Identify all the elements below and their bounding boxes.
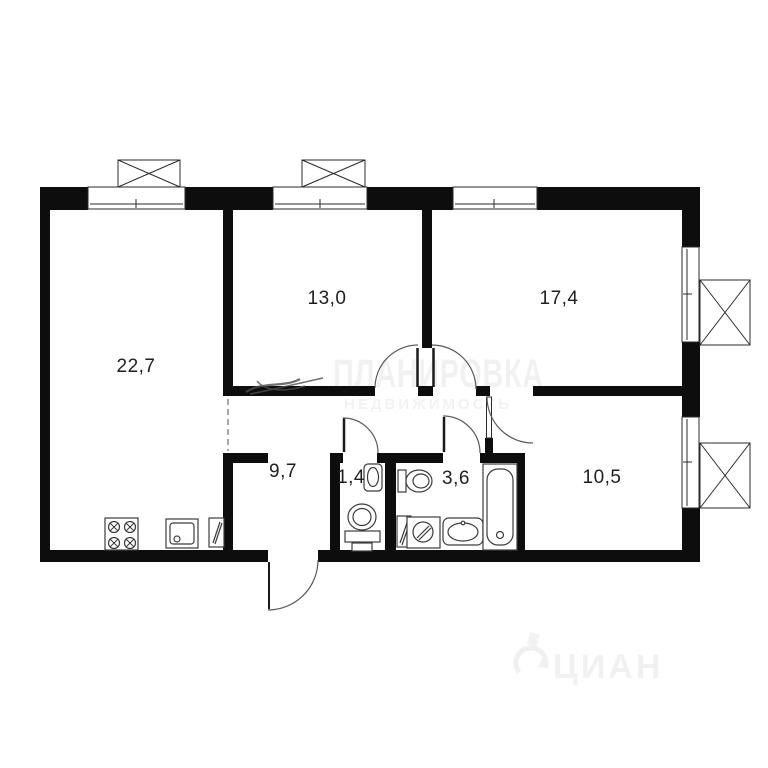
cian-logo-icon: [516, 632, 549, 672]
wall-bedroom3-stub: [485, 438, 493, 453]
wall-bathroom-right: [517, 453, 525, 553]
label-bedroom-2: 17,4: [540, 288, 579, 309]
wall-right-1: [682, 187, 700, 247]
wc-toilet-icon: [345, 504, 380, 551]
door-bedroom1: [375, 345, 418, 388]
wall-hallway-top-3: [476, 386, 490, 396]
window-bedroom2-right: [682, 247, 699, 342]
wall-wc-bathroom: [385, 453, 396, 553]
label-living-kitchen: 22,7: [117, 356, 156, 377]
label-bathroom: 3,6: [442, 468, 470, 489]
vent-box-bedroom2: [700, 280, 750, 345]
wall-wc-top-1: [330, 453, 343, 463]
bathtub-icon: [483, 464, 517, 550]
floor-plan-canvas: ПЛАНИРОВКА НЕДВИЖИМОСТЬ ЦИАН: [0, 0, 768, 768]
water-heater-icon: [209, 518, 224, 547]
wall-bedroom1-bedroom2: [422, 210, 432, 348]
vent-box-bedroom1: [302, 160, 365, 187]
bathroom-sink-icon: [443, 518, 483, 545]
label-wc: 1,4: [337, 467, 365, 488]
wall-wc-top-2: [377, 453, 396, 463]
window-bedroom1: [273, 187, 367, 209]
bathroom-toilet-icon: [398, 470, 432, 492]
wc-basin-icon: [364, 464, 382, 491]
kitchen-sink-icon: [166, 519, 198, 548]
door-bathroom: [443, 416, 480, 453]
wall-bottom-2: [318, 550, 700, 562]
stove-icon: [105, 518, 138, 550]
wall-top-4: [537, 187, 700, 210]
door-bedroom3: [487, 397, 534, 443]
wall-left: [40, 187, 50, 562]
label-bedroom-1: 13,0: [308, 288, 347, 309]
vent-box-bedroom3: [700, 443, 750, 508]
wall-top-3: [367, 187, 453, 210]
wall-living-bedroom1: [223, 210, 233, 396]
wall-bottom-1: [40, 550, 268, 562]
wall-hallway-top-2: [418, 386, 433, 396]
wall-bathroom-top-2: [480, 453, 525, 463]
label-bedroom-3: 10,5: [583, 467, 622, 488]
washing-machine-icon: [407, 517, 440, 548]
window-bedroom3-right: [682, 417, 699, 508]
door-wc: [343, 418, 378, 453]
floor-plan-drawing: 22,7 13,0 17,4 9,7 1,4 3,6 10,5: [0, 0, 768, 768]
wall-bedroom2-bedroom3: [533, 386, 682, 396]
wall-bathroom-top-1: [396, 453, 443, 463]
door-bedroom2: [432, 345, 476, 389]
wall-right-2: [682, 342, 700, 417]
kitchen-fixtures: [105, 518, 224, 550]
wall-top-2: [185, 187, 273, 210]
label-hallway: 9,7: [269, 461, 297, 482]
door-entrance: [268, 560, 318, 610]
window-bedroom2-top: [453, 187, 537, 209]
vent-box-living: [118, 160, 180, 187]
wall-hallway-stub: [223, 453, 268, 463]
window-living: [88, 187, 185, 209]
